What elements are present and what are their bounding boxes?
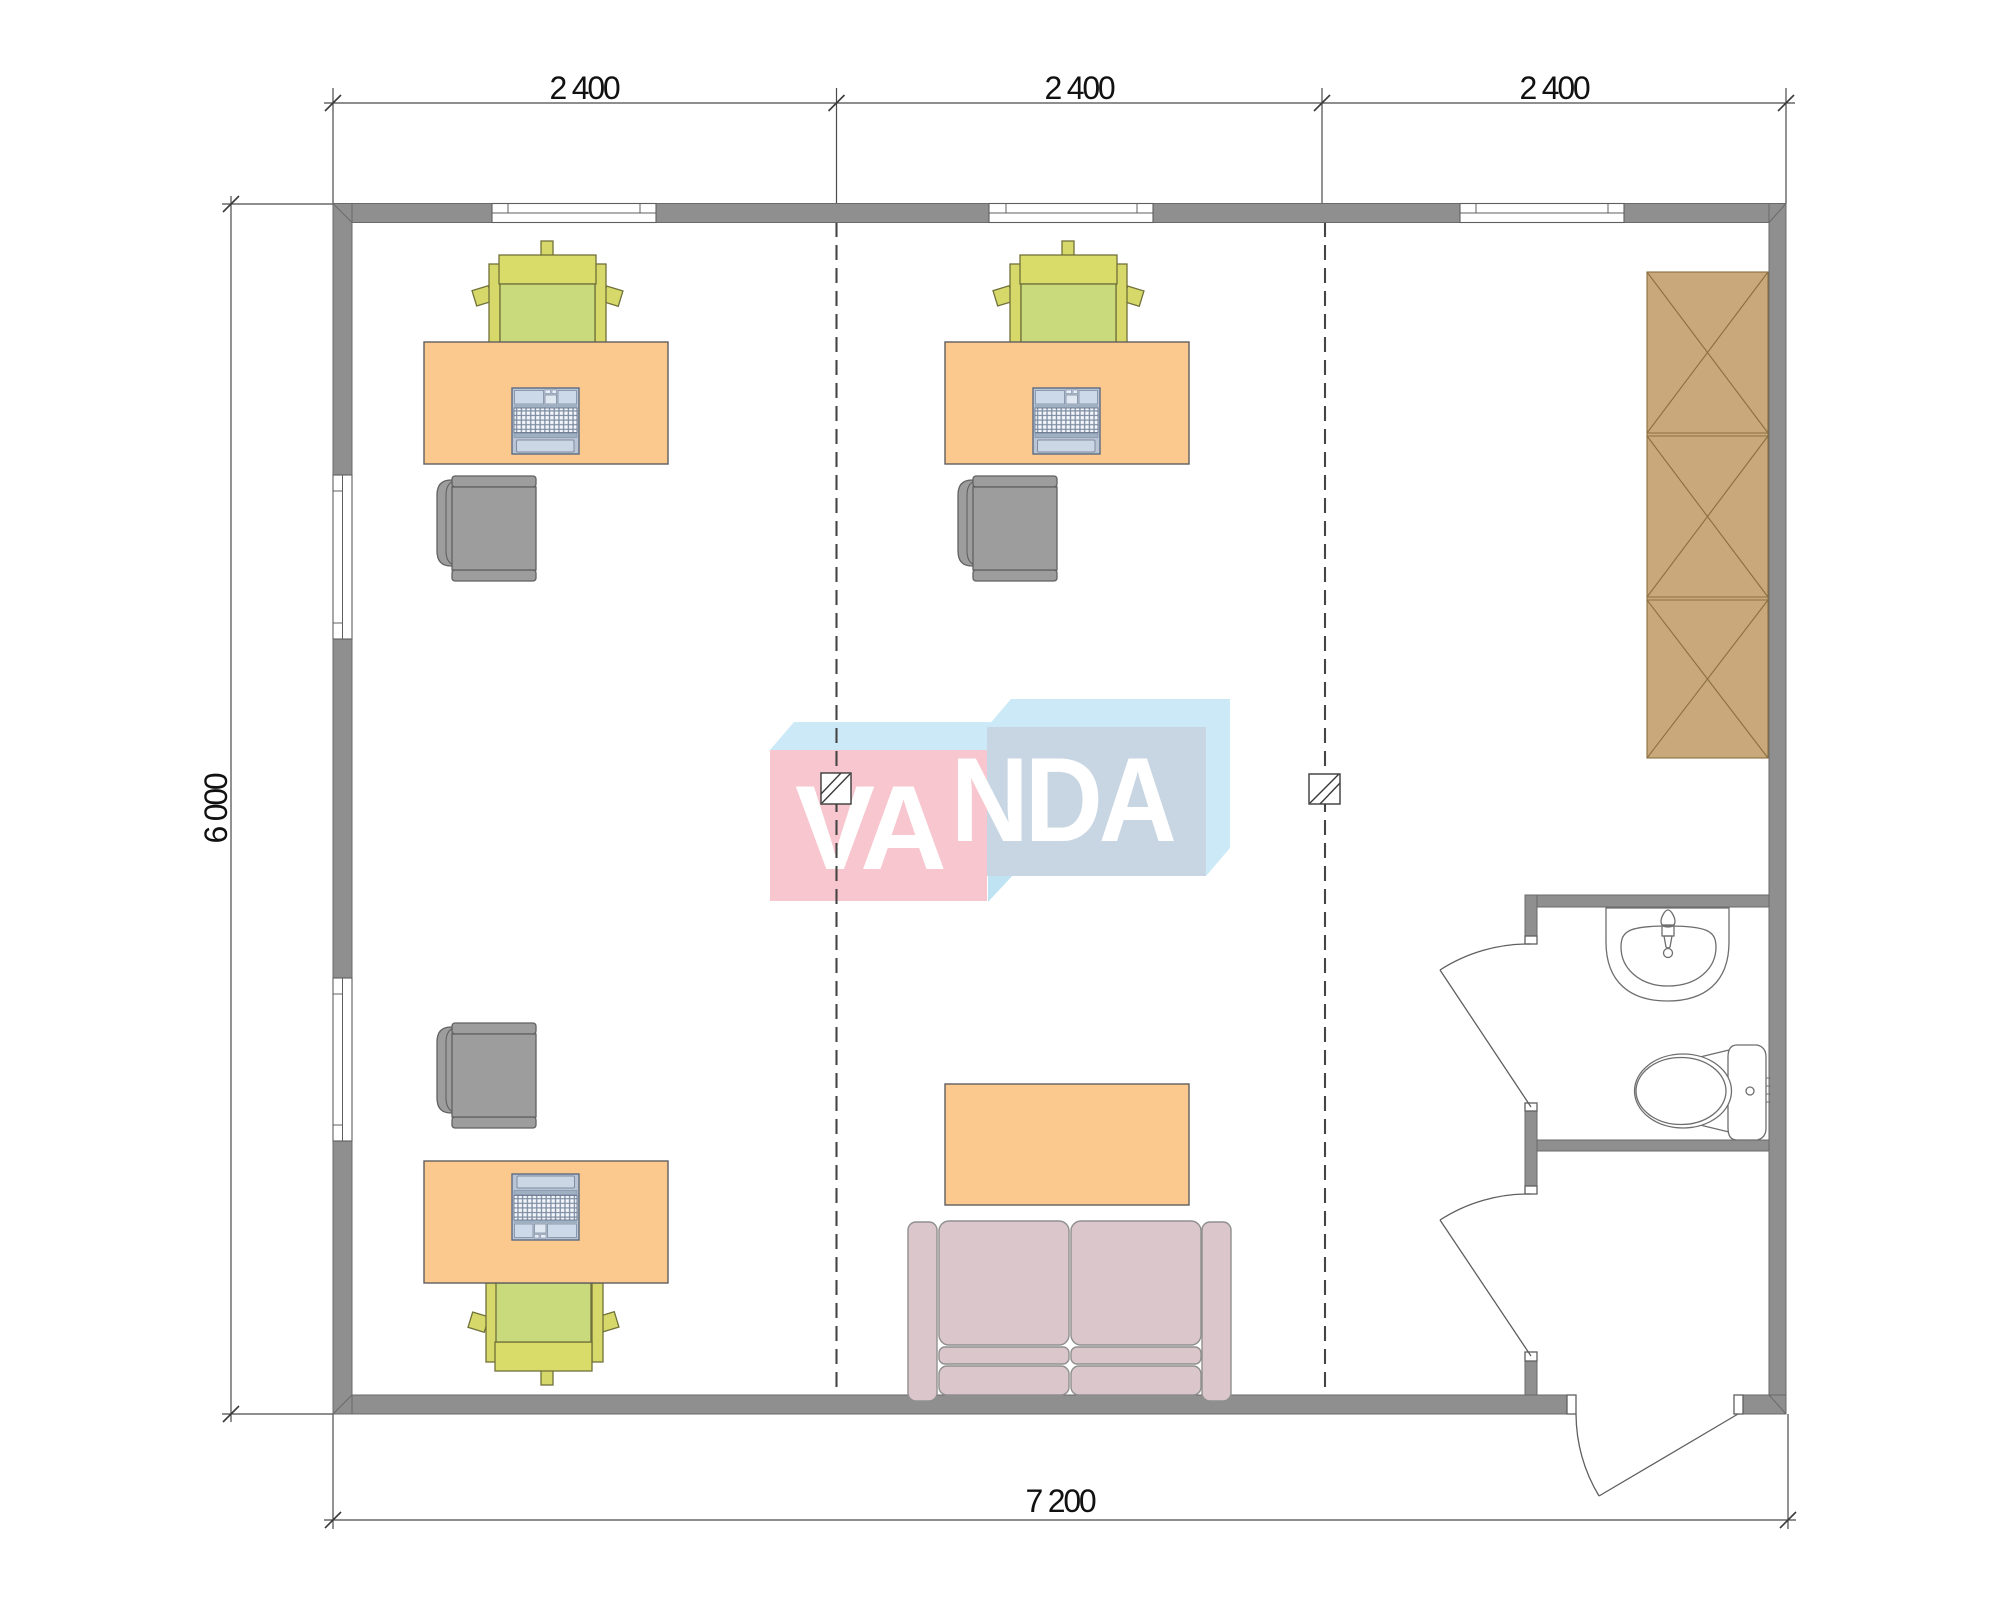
svg-text:7 200: 7 200 <box>1025 1483 1095 1519</box>
svg-text:2 400: 2 400 <box>1044 70 1114 106</box>
svg-text:2 400: 2 400 <box>1519 70 1589 106</box>
svg-text:2 400: 2 400 <box>549 70 619 106</box>
svg-text:VA: VA <box>795 761 944 895</box>
svg-text:6 000: 6 000 <box>198 773 234 843</box>
svg-text:NDA: NDA <box>951 734 1175 867</box>
